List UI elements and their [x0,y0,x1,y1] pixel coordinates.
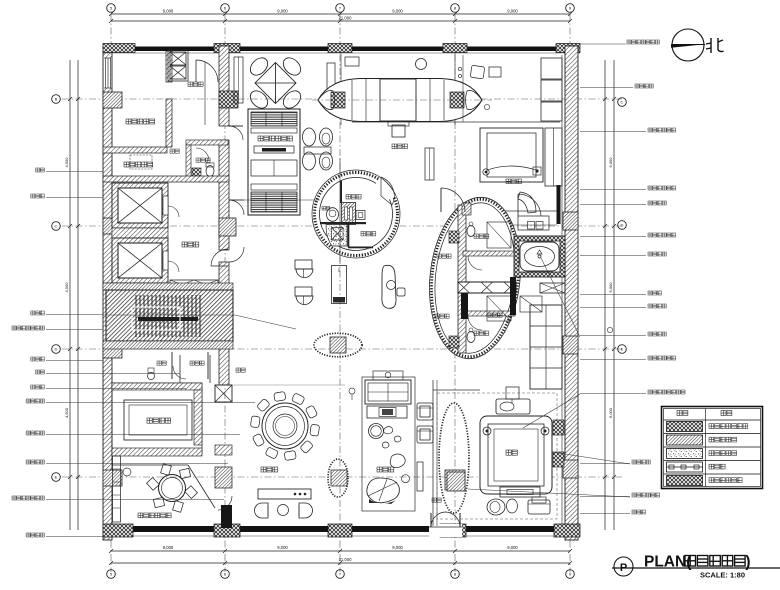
svg-text:4,500: 4,500 [64,407,69,418]
svg-text:B: B [55,97,58,102]
svg-text:C: C [55,224,58,229]
svg-text:E: E [621,347,624,352]
svg-text:9,000: 9,000 [392,545,403,550]
svg-text:9,000: 9,000 [277,9,288,14]
svg-text:C: C [621,100,624,105]
svg-text:21,000: 21,000 [339,16,352,21]
svg-text:6,000: 6,000 [608,407,613,418]
svg-text:21,000: 21,000 [339,557,352,562]
svg-text:9,000: 9,000 [507,9,518,14]
svg-text:9,000: 9,000 [392,9,403,14]
svg-text:9,000: 9,000 [163,9,174,14]
svg-text:P: P [620,562,627,574]
svg-text:9,000: 9,000 [277,545,288,550]
svg-text:SCALE: 1:80: SCALE: 1:80 [700,571,745,580]
svg-text:4,500: 4,500 [64,157,69,168]
svg-text:4,500: 4,500 [64,282,69,293]
svg-text:9,000: 9,000 [163,545,174,550]
svg-text:6,000: 6,000 [608,157,613,168]
svg-text:D: D [621,223,624,228]
svg-text:D: D [55,347,58,352]
svg-text:): ) [745,554,750,571]
svg-text:6,000: 6,000 [608,282,613,293]
svg-text:9,000: 9,000 [507,545,518,550]
svg-text:E: E [55,475,58,480]
